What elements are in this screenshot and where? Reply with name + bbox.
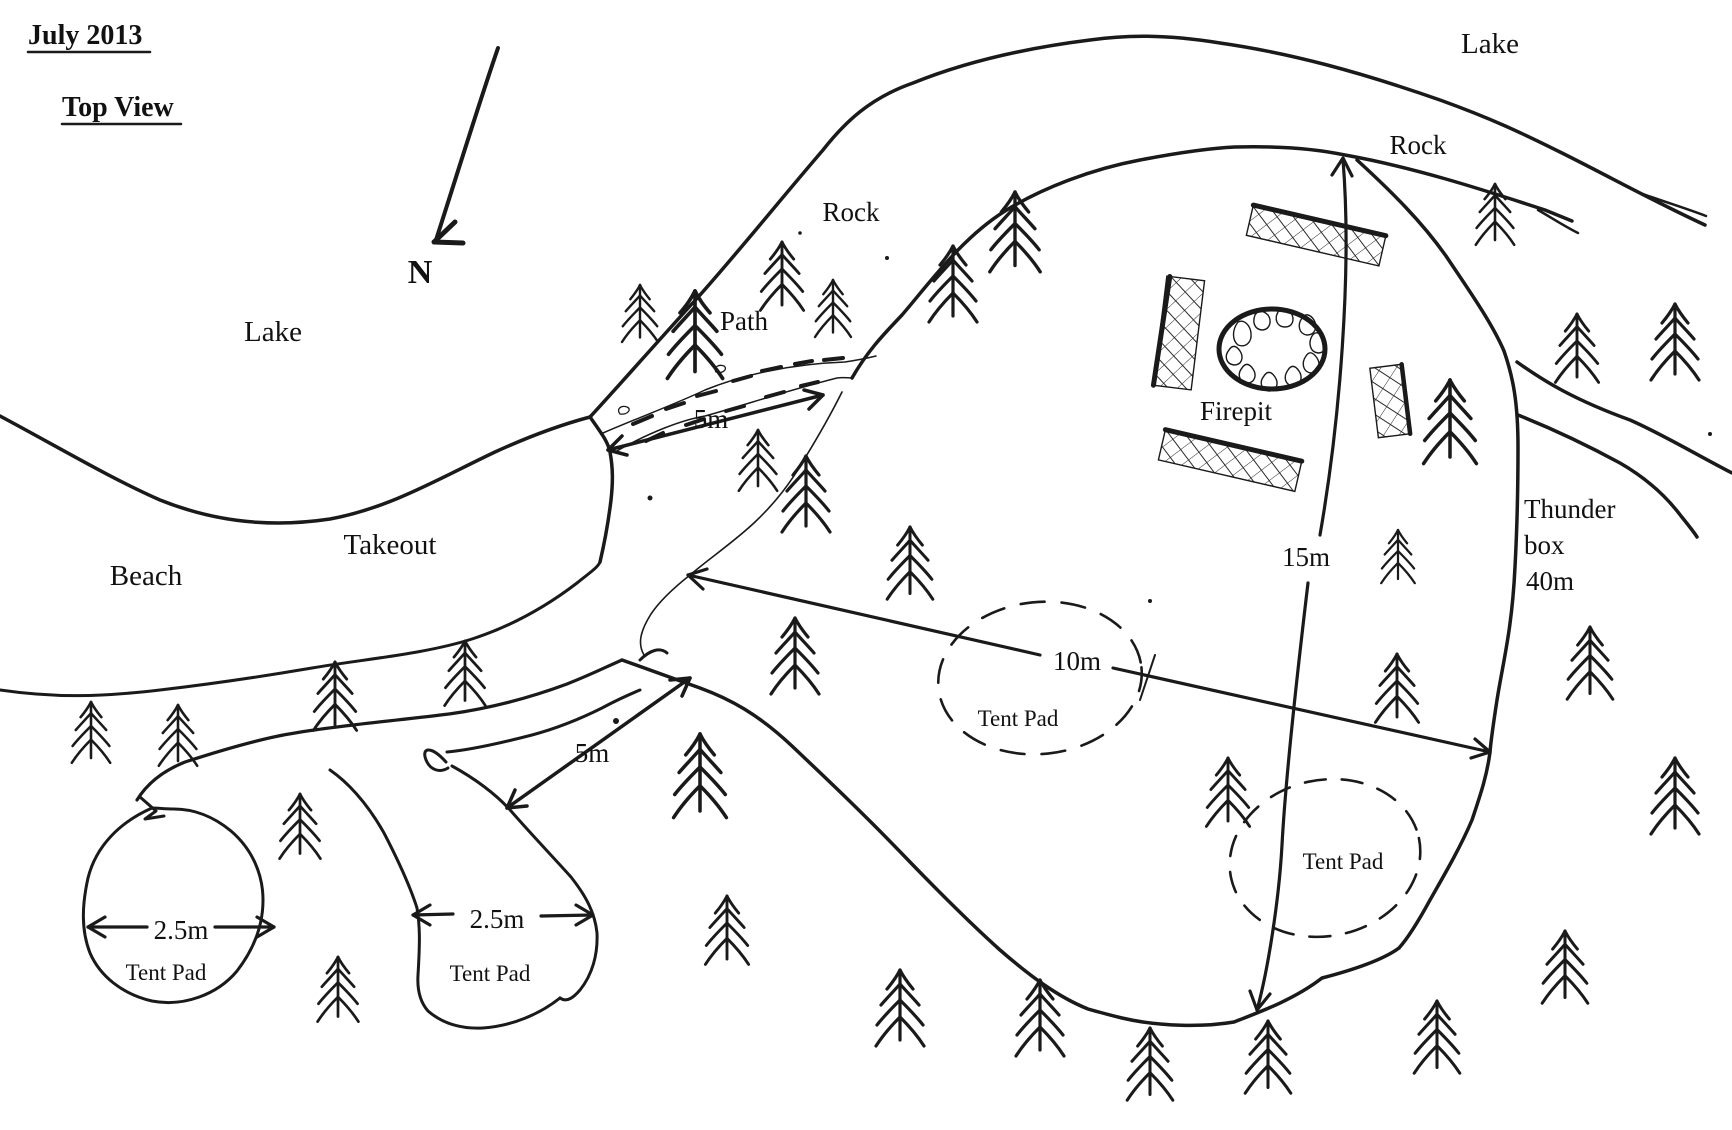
- tree-icon: [782, 456, 830, 532]
- firepit-log-north: [1246, 205, 1385, 266]
- tent-pad-southwest-label: Tent Pad: [126, 960, 207, 985]
- beach-label: Beach: [110, 560, 183, 592]
- north-arrow: [434, 48, 498, 243]
- thunderbox-label-line3: 40m: [1526, 566, 1574, 596]
- tree-icon: [760, 242, 803, 310]
- trail-end-curl: [425, 750, 448, 770]
- firepit-ring: [1219, 309, 1325, 389]
- tree-icon: [771, 618, 819, 694]
- tree-icon: [887, 527, 933, 599]
- firepit-log-south: [1158, 430, 1301, 492]
- tent-pad-main-label: Tent Pad: [978, 706, 1059, 731]
- rock-hill-label: Rock: [823, 197, 880, 227]
- firepit-log-west: [1153, 276, 1204, 390]
- tree-icon: [815, 280, 851, 337]
- forest: [72, 184, 1699, 1100]
- tree-icon: [1567, 627, 1613, 699]
- clearing-width-value: 10m: [1053, 646, 1101, 676]
- path-width-value: 5m: [694, 404, 729, 434]
- tree-icon: [313, 662, 356, 730]
- map-canvas: July 2013 Top View N Lake Lake Rock Rock…: [0, 0, 1732, 1130]
- tree-icon: [667, 291, 722, 378]
- tree-icon: [705, 896, 748, 964]
- trail-lower-edge: [447, 690, 640, 752]
- clearing-length-arrow: [1250, 158, 1352, 1010]
- firepit-label: Firepit: [1200, 396, 1272, 426]
- clearing-length-value: 15m: [1282, 542, 1330, 572]
- path-pebble: [619, 406, 630, 414]
- tree-icon: [990, 192, 1040, 272]
- tree-icon: [1206, 758, 1249, 826]
- tree-icon: [1555, 314, 1598, 382]
- takeout-landing-edge: [590, 417, 612, 562]
- north-shoreline: [590, 36, 1705, 417]
- tree-icon: [1651, 758, 1699, 834]
- clearing-boundary: [622, 147, 1578, 1026]
- campsite-sketch-map: July 2013 Top View N Lake Lake Rock Rock…: [0, 0, 1732, 1130]
- clearing-left-edge: [640, 392, 842, 655]
- rock-ridge-line: [852, 147, 1572, 378]
- map-view-title: Top View: [62, 92, 175, 123]
- west-shoreline: [0, 416, 590, 523]
- tree-icon: [1476, 184, 1514, 245]
- pad-southwest-diameter-value: 2.5m: [154, 915, 209, 945]
- tent-pad-main-outline: [931, 592, 1150, 764]
- shore-detail-stroke: [1640, 193, 1706, 216]
- clearing-right-edge: [1357, 160, 1518, 948]
- trail-width-value: 5m: [575, 738, 610, 768]
- beach-lower-edge: [0, 562, 600, 696]
- tent-pad-south-left-edge: [330, 770, 560, 1028]
- lake-west-label: Lake: [244, 316, 302, 348]
- tree-icon: [929, 246, 977, 322]
- takeout-label: Takeout: [344, 529, 437, 561]
- tree-icon: [280, 794, 321, 859]
- firepit-group: [1153, 205, 1410, 491]
- tree-icon: [1375, 654, 1418, 722]
- tree-icon: [1127, 1028, 1173, 1100]
- tree-icon: [674, 734, 727, 818]
- tree-icon: [318, 957, 359, 1022]
- tree-icon: [1414, 1001, 1460, 1073]
- map-date-title: July 2013: [28, 20, 142, 51]
- north-label: N: [408, 254, 433, 291]
- pad-south-diameter-value: 2.5m: [470, 904, 525, 934]
- tree-icon: [445, 641, 486, 706]
- tree-icon: [72, 702, 110, 763]
- rock-shore-label: Rock: [1390, 130, 1447, 160]
- tent-pad-south-label: Tent Pad: [450, 961, 531, 986]
- tree-icon: [622, 285, 658, 342]
- tree-icon: [159, 705, 197, 766]
- thunderbox-label-line1: Thunder: [1524, 494, 1615, 524]
- tent-pad-east-label: Tent Pad: [1303, 849, 1384, 874]
- thunderbox-label-line2: box: [1524, 530, 1565, 560]
- tree-icon: [739, 430, 777, 491]
- tree-icon: [1542, 931, 1588, 1003]
- tree-icon: [1651, 304, 1699, 380]
- path-label: Path: [720, 306, 769, 336]
- tree-icon: [1424, 380, 1477, 464]
- lake-north-label: Lake: [1461, 28, 1519, 60]
- firepit-log-east: [1370, 364, 1410, 437]
- tree-icon: [1245, 1021, 1291, 1093]
- shorelines: [0, 36, 1706, 695]
- tree-icon: [876, 970, 924, 1046]
- tree-icon: [1381, 530, 1415, 583]
